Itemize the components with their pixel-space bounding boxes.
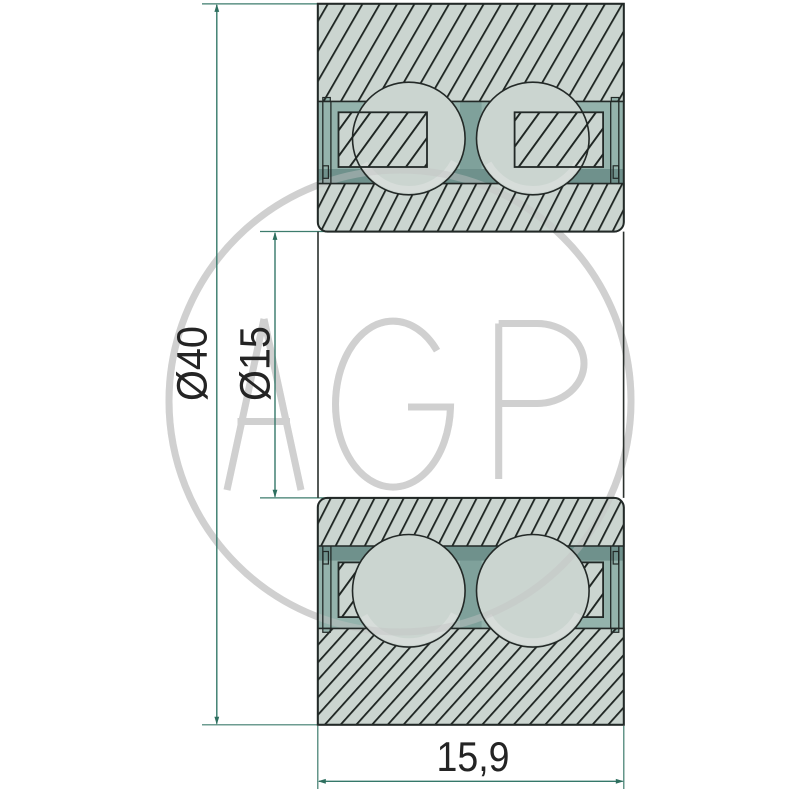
svg-text:Ø40: Ø40 xyxy=(170,326,217,401)
svg-text:Ø15: Ø15 xyxy=(233,326,280,401)
svg-text:15,9: 15,9 xyxy=(437,733,510,780)
